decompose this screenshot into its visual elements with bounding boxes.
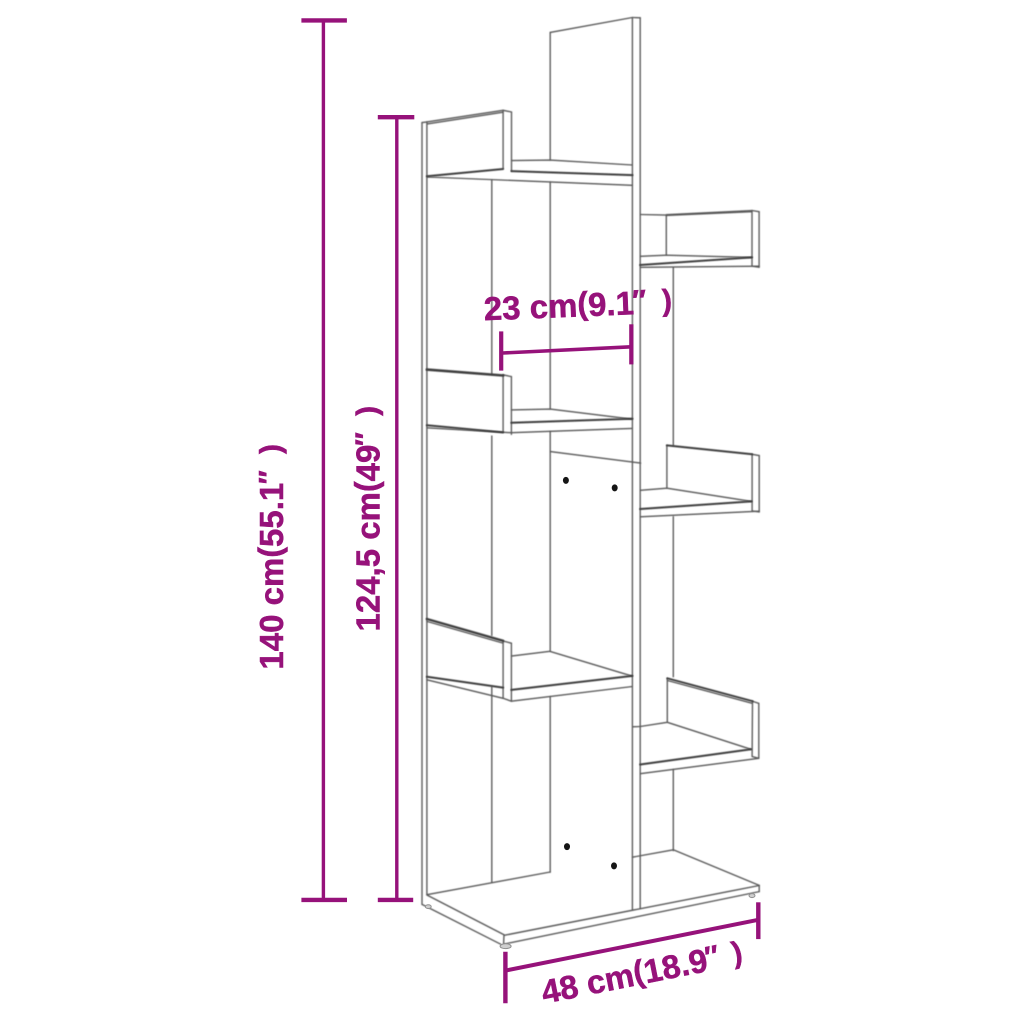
svg-text:124,5 cm(49″ ): 124,5 cm(49″ ) <box>349 406 387 632</box>
svg-text:140 cm(55.1″ ): 140 cm(55.1″ ) <box>252 444 290 670</box>
